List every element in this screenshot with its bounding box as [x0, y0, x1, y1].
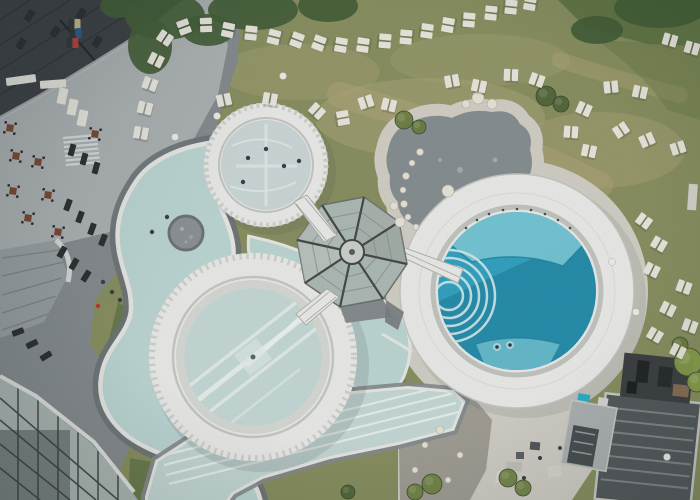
aerial-photo — [0, 0, 700, 500]
grain-overlay — [0, 0, 700, 500]
spa-resort-scene — [0, 0, 700, 500]
